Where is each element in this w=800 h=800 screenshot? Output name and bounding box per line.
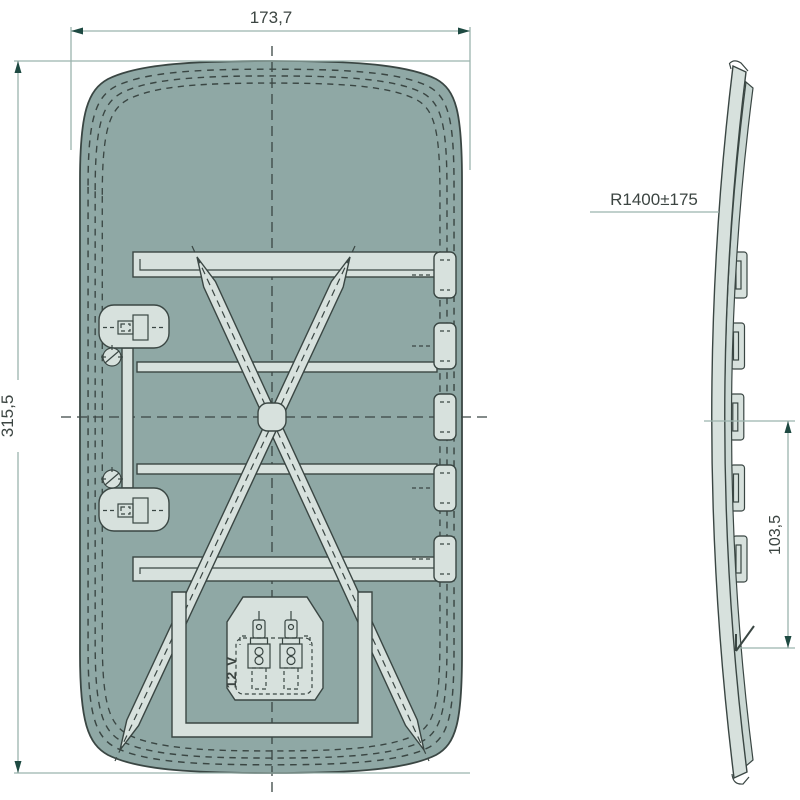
heater-bar-2 xyxy=(137,362,437,372)
arrow-left xyxy=(71,28,83,35)
arrow-up xyxy=(15,61,22,73)
height-value: 315,5 xyxy=(0,395,17,438)
arrow-down xyxy=(785,636,792,648)
voltage-label: 12 V xyxy=(223,656,239,689)
left-connector-bar xyxy=(122,348,133,488)
connector-housing xyxy=(227,597,323,700)
technical-drawing-mirror-glass: 12 V 173,7 315,5 xyxy=(0,0,800,800)
arrow-up xyxy=(785,421,792,433)
left-clip-housing-bottom xyxy=(99,488,169,531)
arrow-right xyxy=(458,28,470,35)
side-profile-view: R1400±175 103,5 xyxy=(590,61,795,784)
heater-bar-top xyxy=(133,252,437,277)
arrow-down xyxy=(15,761,22,773)
left-clip-housing-top xyxy=(99,305,169,348)
front-view: 12 V 173,7 315,5 xyxy=(0,8,487,792)
clip-field-value: 103,5 xyxy=(767,515,784,555)
right-clip-3 xyxy=(434,394,456,440)
drawing-svg: 12 V 173,7 315,5 xyxy=(0,0,800,800)
heater-bar-bottom xyxy=(133,557,437,581)
radius-callout: R1400±175 xyxy=(590,190,719,212)
width-value: 173,7 xyxy=(250,8,293,27)
rib-center-hub xyxy=(258,403,286,431)
radius-value: R1400±175 xyxy=(610,190,698,209)
